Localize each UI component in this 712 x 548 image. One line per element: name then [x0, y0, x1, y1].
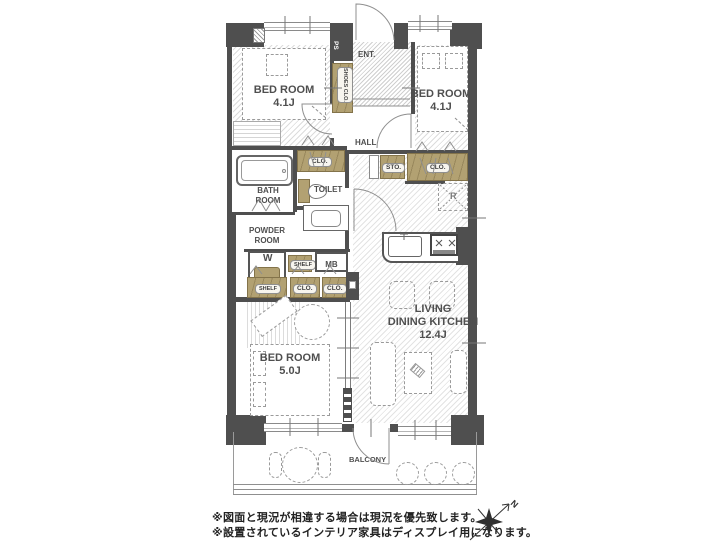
- bath-line1: BATH: [246, 186, 290, 196]
- wall-left-upper: [227, 40, 232, 215]
- bedroom2-size: 4.1J: [408, 101, 474, 114]
- bedroom2-label: BED ROOM 4.1J: [408, 88, 474, 114]
- powder-line2: ROOM: [240, 236, 294, 246]
- wall-hall-left-upper: [345, 150, 349, 188]
- partition-dark-segment: [343, 388, 352, 422]
- balcony-chair-right: [318, 452, 331, 478]
- bedroom2-door-arc: [377, 114, 411, 148]
- planter-3: [452, 462, 475, 485]
- ps-label: PS: [332, 41, 339, 50]
- powder-label: POWDER ROOM: [240, 226, 294, 246]
- kitchen-sink: [388, 236, 422, 257]
- shelf-upper-label: SHELF: [290, 260, 316, 270]
- bedroom2-top-window: [408, 21, 452, 30]
- bedroom3-label: BED ROOM 5.0J: [244, 352, 336, 378]
- bed3-pillow-b: [253, 382, 266, 407]
- bed1-pillow: [266, 54, 288, 76]
- bathtub: [236, 155, 293, 186]
- ldk-line1: LIVING: [362, 303, 504, 316]
- hall-label: HALL: [355, 138, 376, 147]
- ldk-size: 12.4J: [362, 329, 504, 342]
- balcony-label: BALCONY: [349, 455, 386, 464]
- closet-bedroom2: CLO.: [407, 153, 468, 181]
- closet-b-bedroom3: CLO.: [322, 277, 348, 298]
- partition-sliding-track[interactable]: [345, 302, 351, 388]
- bath-label: BATH ROOM: [246, 186, 290, 206]
- closet-bedroom2-label: CLO.: [426, 163, 450, 173]
- ldk-bottom-window: [398, 426, 451, 436]
- chair3: [294, 304, 330, 340]
- dresser1: [233, 121, 281, 146]
- ldk-label: LIVING DINING KITCHEN 12.4J: [362, 303, 504, 342]
- planter-2: [424, 462, 447, 485]
- ps-box: PS: [332, 37, 353, 61]
- shoes-closet: SHOES CLO.: [332, 63, 353, 113]
- planter-1: [396, 462, 419, 485]
- shelf-upper: SHELF: [288, 255, 312, 272]
- closet-hall-label: CLO.: [308, 157, 332, 167]
- balcony-railing: [233, 484, 477, 496]
- bedroom2-name: BED ROOM: [408, 88, 474, 101]
- bed2-pillow-b: [445, 53, 463, 69]
- ent-label: ENT.: [358, 50, 375, 59]
- storage-label: STO.: [382, 163, 405, 173]
- closet-b-label: CLO.: [323, 284, 347, 294]
- pipe-shaft-small: [346, 272, 359, 300]
- closet-a-bedroom3: CLO.: [290, 277, 320, 298]
- ac-unit-icon: [253, 28, 265, 43]
- wall-bottom-a: [342, 424, 354, 432]
- storage-door[interactable]: [369, 155, 379, 179]
- entrance-door-arc: [356, 4, 394, 40]
- lounge-chair: [450, 350, 467, 394]
- closet-hall: CLO.: [297, 150, 345, 172]
- vanity-counter: [303, 205, 349, 231]
- ldk-line2: DINING KITCHEN: [362, 316, 504, 329]
- meter-box: MB: [315, 252, 348, 272]
- bath-line2: ROOM: [246, 196, 290, 206]
- bedroom1-label: BED ROOM 4.1J: [238, 84, 330, 110]
- powder-line1: POWDER: [240, 226, 294, 236]
- sofa: [370, 342, 396, 406]
- bathtub-drain: [282, 169, 286, 173]
- balcony-table: [282, 447, 318, 483]
- shelf-lower-label: SHELF: [255, 284, 281, 294]
- compass-icon: N: [462, 492, 522, 548]
- shelf-lower: SHELF: [247, 277, 287, 298]
- refrigerator-label: R: [450, 191, 457, 201]
- wall-bottom-b: [390, 424, 398, 432]
- wall-left-lower: [227, 215, 236, 420]
- meter-box-label: MB: [325, 260, 337, 269]
- wall-bath-bottom: [230, 212, 295, 215]
- bedroom3-size: 5.0J: [244, 365, 336, 378]
- pipe-shaft-vent-icon: [349, 281, 356, 289]
- refrigerator-space: R: [438, 183, 468, 211]
- floor-plan: PS SHOES CLO. CLO. STO. CLO. W SHELF MB …: [0, 0, 712, 548]
- wall-top-right-of-door: [394, 23, 408, 49]
- bedroom1-size: 4.1J: [238, 97, 330, 110]
- bedroom3-name: BED ROOM: [244, 352, 336, 365]
- bedroom3-bottom-window: [264, 423, 342, 432]
- bathtub-inner: [241, 160, 288, 181]
- compass-north-label: N: [509, 498, 521, 510]
- shoes-closet-label: SHOES CLO.: [337, 67, 353, 103]
- storage-hall: STO.: [380, 155, 405, 179]
- bedroom1-name: BED ROOM: [238, 84, 330, 97]
- toilet-label: TOILET: [314, 185, 342, 194]
- note-line-1: ※図面と現況が相違する場合は現況を優先致します。: [212, 509, 482, 525]
- bedroom1-top-window: [264, 22, 330, 31]
- bed2-pillow-a: [422, 53, 440, 69]
- closet-a-label: CLO.: [293, 284, 317, 294]
- washer-label: W: [263, 253, 272, 264]
- vanity-basin: [311, 210, 341, 227]
- balcony-chair-left: [269, 452, 282, 478]
- stove-grill: [433, 250, 455, 254]
